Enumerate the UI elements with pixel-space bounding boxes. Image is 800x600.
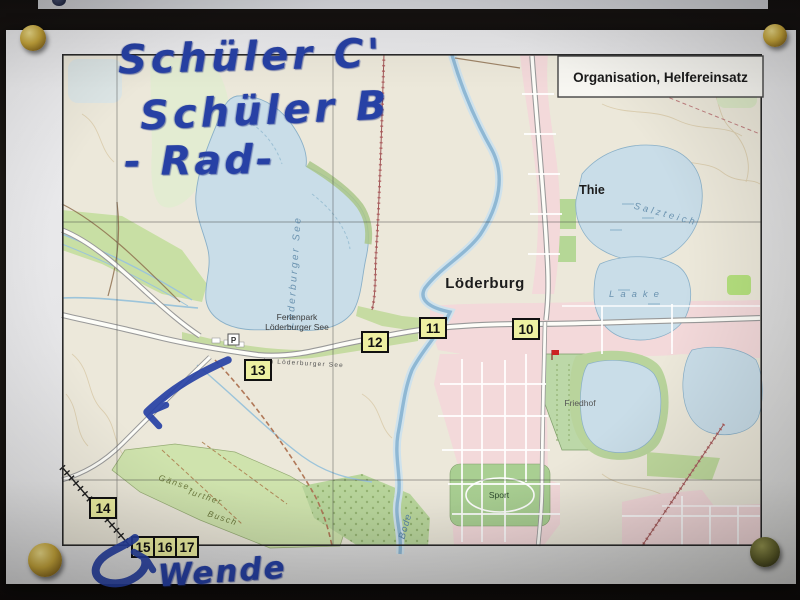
push-pin-bottom-right [750, 537, 780, 567]
waypoint-10: 10 [513, 319, 539, 339]
waypoint-11-number: 11 [426, 321, 441, 336]
waypoint-13: 13 [245, 360, 271, 380]
label-thie: Thie [579, 183, 605, 197]
push-pin-bottom-left [28, 543, 62, 577]
map-title-text: Organisation, Helfereinsatz [573, 70, 748, 85]
map-sheet: P Löderburg Thie Löderburger See Salztei… [6, 30, 796, 584]
handwritten-note-schueler-c: Schüler C' [117, 31, 384, 84]
label-loederburg: Löderburg [445, 275, 525, 292]
waypoint-16: 16 [154, 537, 176, 557]
lake-se-b [683, 347, 762, 434]
parking-symbol: P [228, 334, 239, 345]
waypoint-10-number: 10 [518, 322, 533, 337]
map-title-box: Organisation, Helfereinsatz [558, 56, 763, 97]
waypoint-17-number: 17 [179, 540, 194, 555]
upper-paper-edge [38, 0, 768, 9]
waypoint-11: 11 [420, 318, 446, 338]
waypoint-15: 15 [132, 537, 154, 557]
nw-pale-field [68, 59, 122, 103]
waypoint-17: 17 [176, 537, 198, 557]
waypoint-14-number: 14 [95, 501, 111, 516]
label-ferienpark-2: Löderburger See [265, 322, 329, 332]
label-ferienpark-1: Ferienpark [277, 312, 318, 322]
push-pin-top-left [20, 25, 46, 51]
green-patch-east [727, 275, 751, 295]
handwritten-note-rad: - Rad- [124, 137, 276, 186]
label-sport: Sport [489, 490, 510, 500]
waypoint-12-number: 12 [367, 335, 382, 350]
bulletin-board: P Löderburg Thie Löderburger See Salztei… [0, 0, 800, 600]
parking-letter: P [231, 336, 237, 345]
waypoint-12: 12 [362, 332, 388, 352]
push-pin-top-right [763, 24, 787, 47]
label-friedhof: Friedhof [564, 398, 596, 408]
waypoint-16-number: 16 [157, 540, 173, 555]
label-laake: Laake [609, 289, 665, 300]
handwritten-note-wende: Wende [157, 550, 288, 595]
waypoint-13-number: 13 [250, 363, 266, 378]
waypoint-15-number: 15 [135, 540, 151, 555]
waypoint-14: 14 [90, 498, 116, 518]
